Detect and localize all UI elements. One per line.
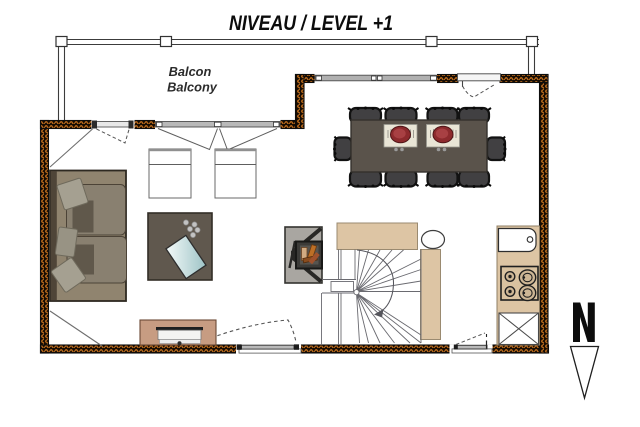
svg-text:Balcon: Balcon (169, 64, 212, 79)
svg-text:Balcony: Balcony (167, 80, 218, 95)
svg-text:NIVEAU / LEVEL +1: NIVEAU / LEVEL +1 (229, 11, 393, 35)
